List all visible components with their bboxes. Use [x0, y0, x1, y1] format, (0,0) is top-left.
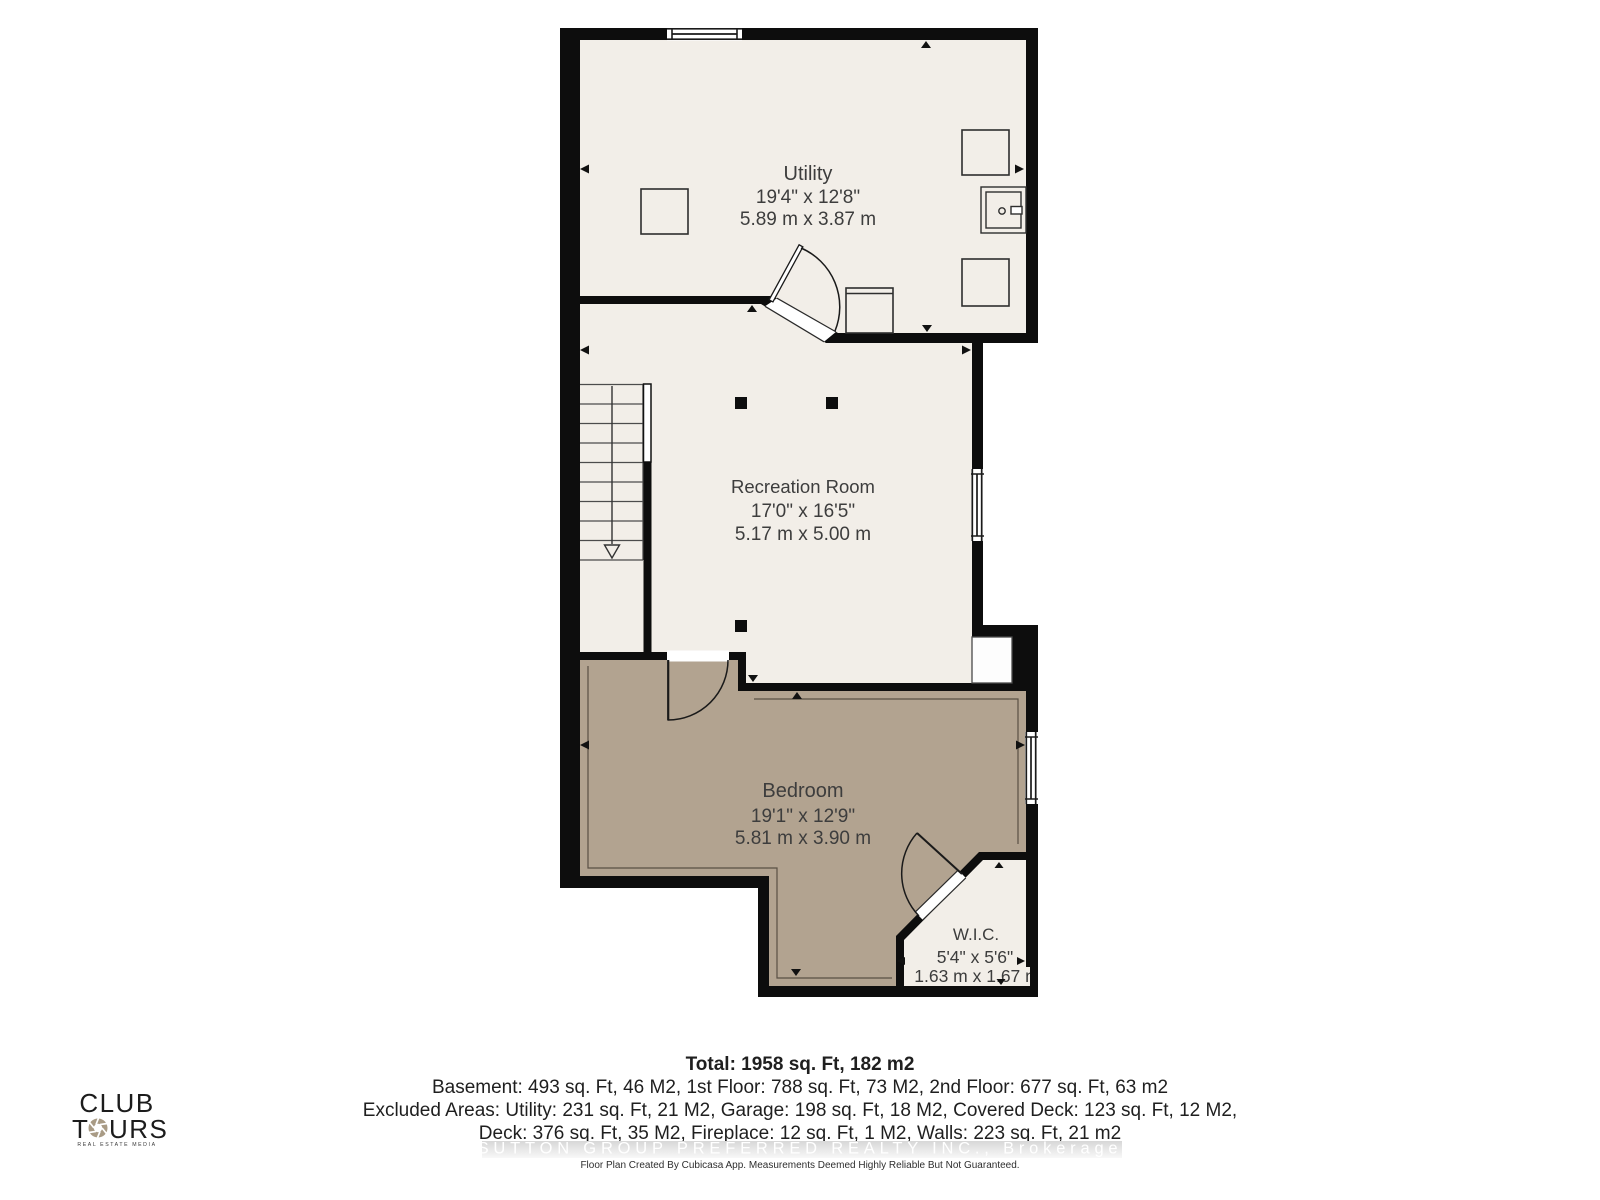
svg-text:5.17 m x 5.00 m: 5.17 m x 5.00 m	[735, 524, 871, 545]
svg-text:Basement: 493 sq. Ft, 46 M2, 1: Basement: 493 sq. Ft, 46 M2, 1st Floor: …	[432, 1077, 1168, 1098]
svg-text:19'4" x 12'8": 19'4" x 12'8"	[756, 187, 860, 208]
svg-text:5.81 m x 3.90 m: 5.81 m x 3.90 m	[735, 828, 871, 849]
svg-text:Floor Plan Created By Cubicasa: Floor Plan Created By Cubicasa App. Meas…	[580, 1160, 1019, 1171]
svg-text:5'4" x 5'6": 5'4" x 5'6"	[937, 947, 1014, 967]
svg-text:Utility: Utility	[784, 163, 833, 185]
svg-text:URS: URS	[109, 1114, 168, 1144]
svg-text:19'1" x 12'9": 19'1" x 12'9"	[751, 806, 855, 827]
svg-text:W.I.C.: W.I.C.	[953, 925, 999, 944]
svg-text:Recreation Room: Recreation Room	[731, 476, 875, 497]
svg-text:Excluded Areas: Utility: 231 s: Excluded Areas: Utility: 231 sq. Ft, 21 …	[363, 1100, 1237, 1121]
svg-text:5.89 m x 3.87 m: 5.89 m x 3.87 m	[740, 209, 876, 230]
svg-text:17'0" x 16'5": 17'0" x 16'5"	[751, 501, 855, 522]
svg-text:1.63 m x 1.67 m: 1.63 m x 1.67 m	[914, 966, 1039, 986]
svg-text:SUTTON GROUP PREFERRED REALTY: SUTTON GROUP PREFERRED REALTY INC., Brok…	[478, 1140, 1123, 1158]
svg-text:REAL ESTATE MEDIA: REAL ESTATE MEDIA	[77, 1142, 156, 1148]
svg-text:T: T	[72, 1114, 89, 1144]
svg-text:Total: 1958 sq. Ft, 182 m2: Total: 1958 sq. Ft, 182 m2	[686, 1054, 915, 1075]
svg-text:Bedroom: Bedroom	[762, 780, 843, 802]
